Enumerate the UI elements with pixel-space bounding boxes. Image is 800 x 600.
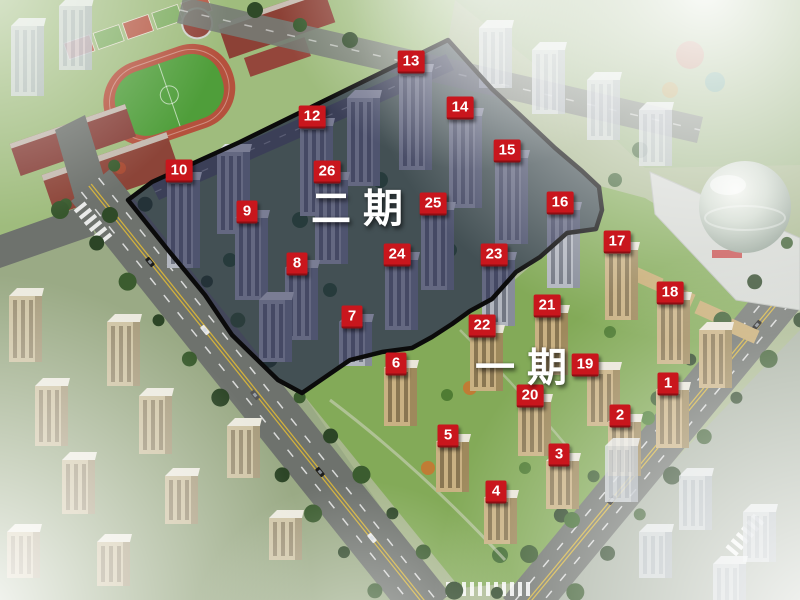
building-marker-8[interactable]: 8	[287, 253, 308, 276]
masterplan-map: 1234567891012131415161718192021222324252…	[0, 0, 800, 600]
building-marker-10[interactable]: 10	[166, 160, 193, 183]
building-marker-24[interactable]: 24	[384, 244, 411, 267]
building-marker-14[interactable]: 14	[447, 97, 474, 120]
building-marker-13[interactable]: 13	[398, 51, 425, 74]
building-marker-15[interactable]: 15	[494, 140, 521, 163]
building-marker-18[interactable]: 18	[657, 282, 684, 305]
building-marker-23[interactable]: 23	[481, 244, 508, 267]
building-marker-21[interactable]: 21	[534, 295, 561, 318]
building-marker-2[interactable]: 2	[610, 405, 631, 428]
building-marker-6[interactable]: 6	[386, 353, 407, 376]
building-marker-25[interactable]: 25	[420, 193, 447, 216]
phase1-label: 一期	[463, 335, 579, 393]
building-marker-17[interactable]: 17	[604, 231, 631, 254]
building-markers: 1234567891012131415161718192021222324252…	[0, 0, 800, 600]
building-marker-5[interactable]: 5	[438, 425, 459, 448]
phase2-label: 二期	[299, 176, 415, 234]
building-marker-9[interactable]: 9	[237, 201, 258, 224]
building-marker-7[interactable]: 7	[342, 306, 363, 329]
building-marker-12[interactable]: 12	[299, 106, 326, 129]
building-marker-4[interactable]: 4	[486, 481, 507, 504]
building-marker-1[interactable]: 1	[658, 373, 679, 396]
building-marker-3[interactable]: 3	[549, 444, 570, 467]
building-marker-16[interactable]: 16	[547, 192, 574, 215]
